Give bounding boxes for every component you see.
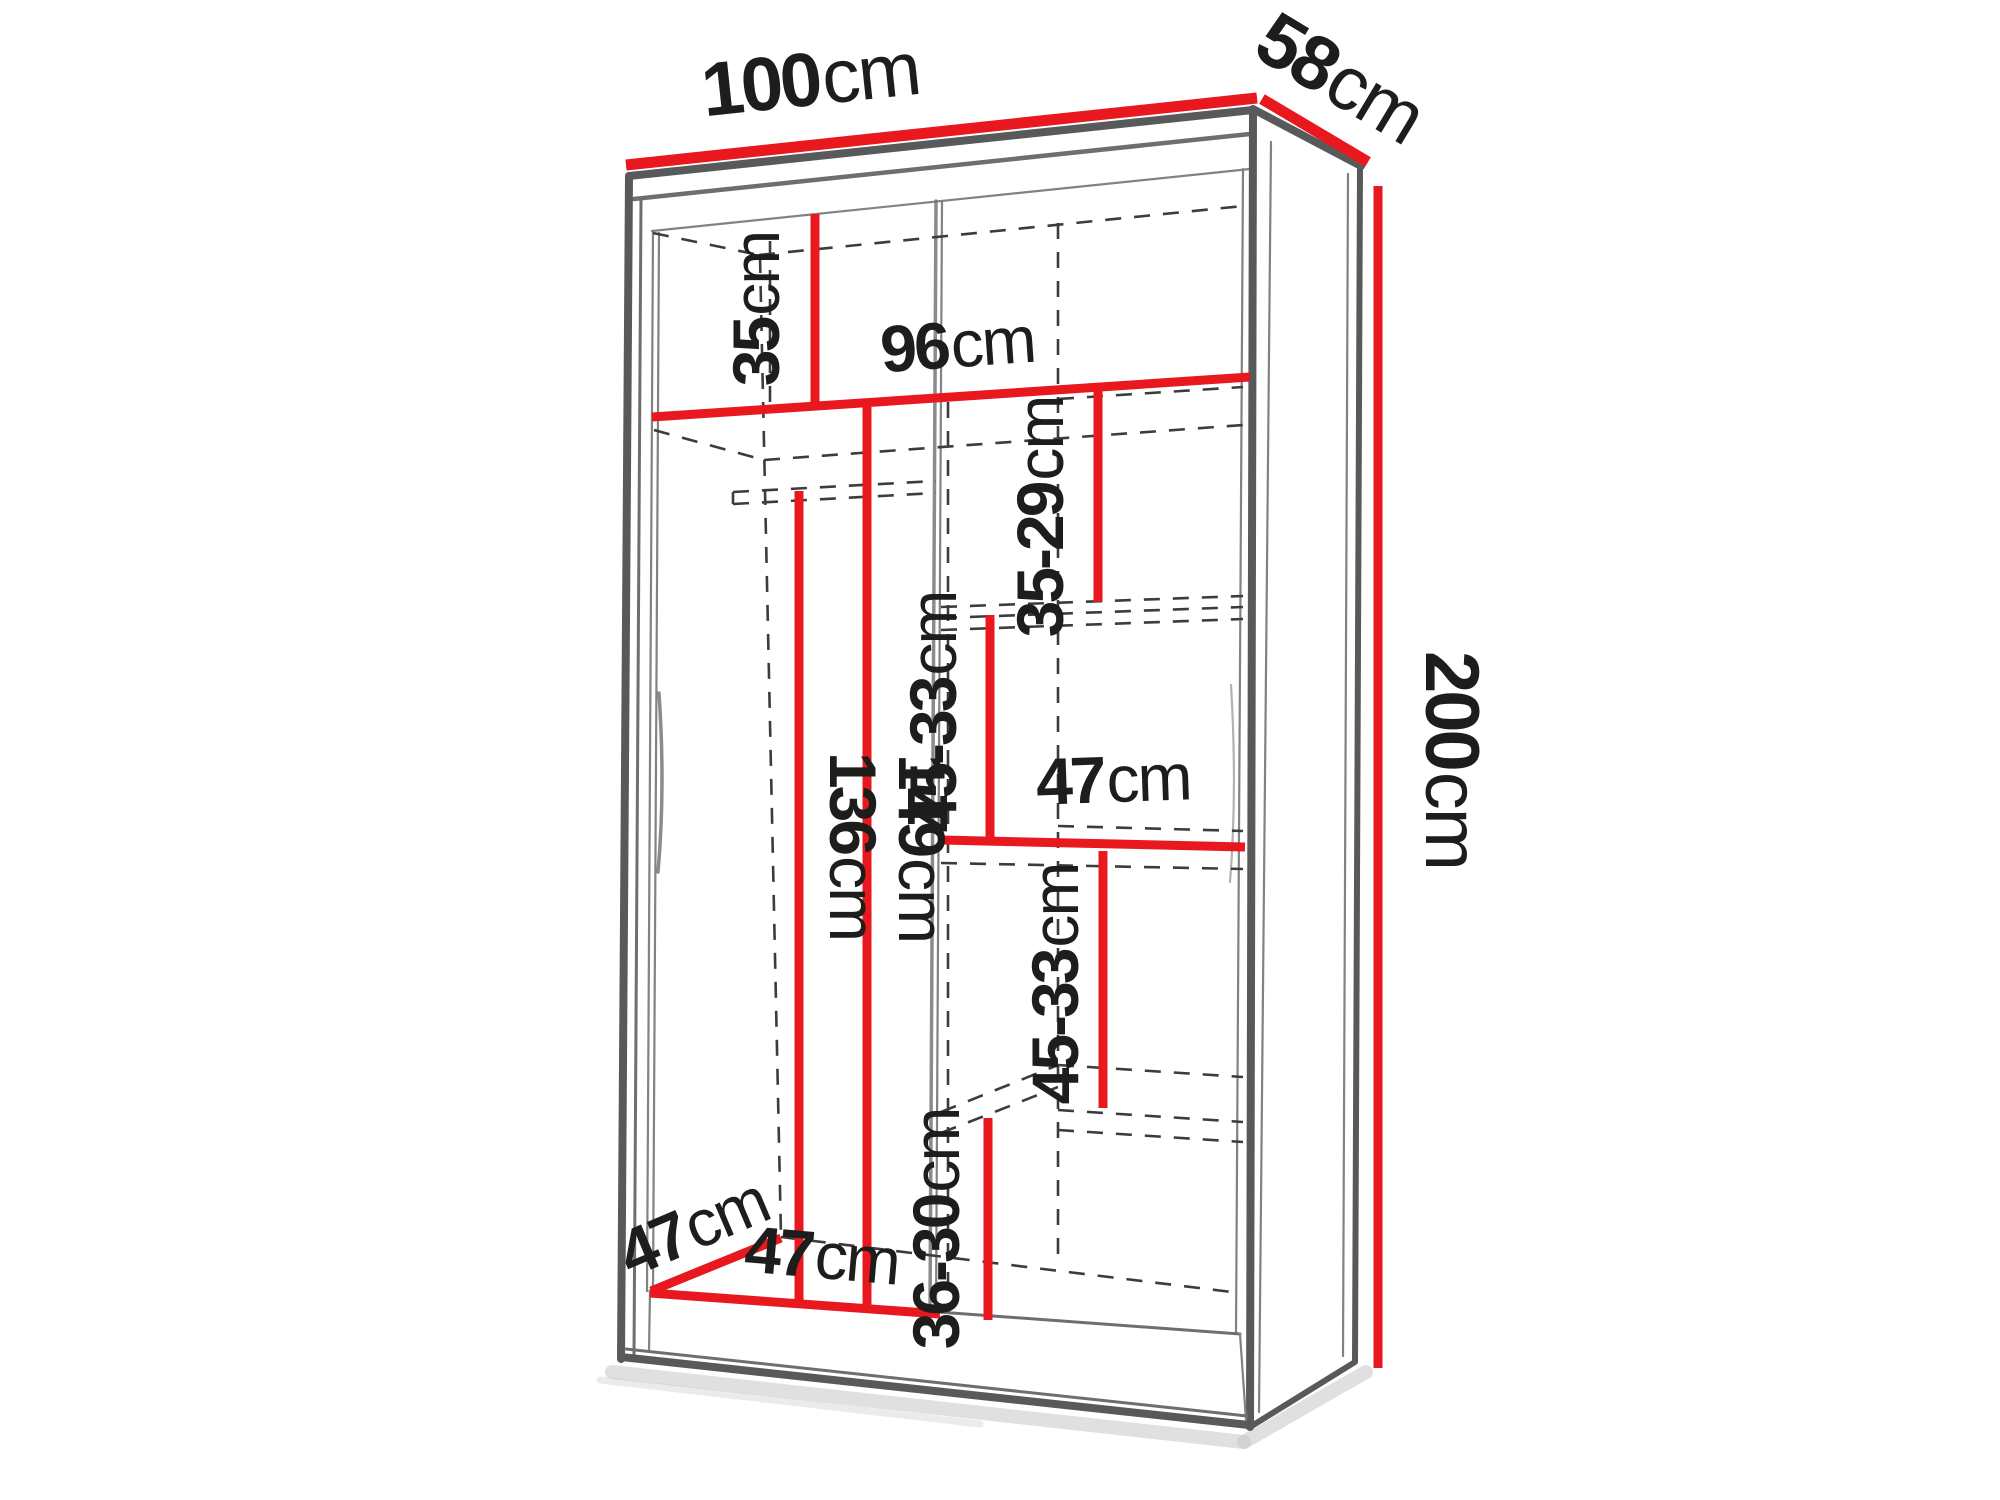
dim-label-lower-shelf-gap: 36-30cm (899, 1109, 973, 1350)
dim-label-rod-to-floor: 136cm (816, 752, 890, 940)
dim-label-mid-shelf-gap-right: 45-33cm (1018, 864, 1092, 1105)
diagram-svg: 100cm 58cm 200cm 35cm 96cm 35-29cm 45-33… (0, 0, 2000, 1500)
dim-label-upper-shelf-gap: 35-29cm (1003, 397, 1077, 638)
wardrobe-dimensions-diagram: 100cm 58cm 200cm 35cm 96cm 35-29cm 45-33… (0, 0, 2000, 1500)
dim-label-width-top: 100cm (697, 26, 923, 133)
dim-label-left-section-width: 47cm (742, 1211, 902, 1298)
dim-label-interior-width: 96cm (878, 302, 1037, 387)
dim-label-height: 200cm (1409, 651, 1494, 869)
dim-label-shelf-width: 47cm (1035, 739, 1192, 818)
dim-label-top-compartment: 35cm (719, 232, 793, 386)
dim-label-hanging-height: 149cm (885, 754, 959, 942)
